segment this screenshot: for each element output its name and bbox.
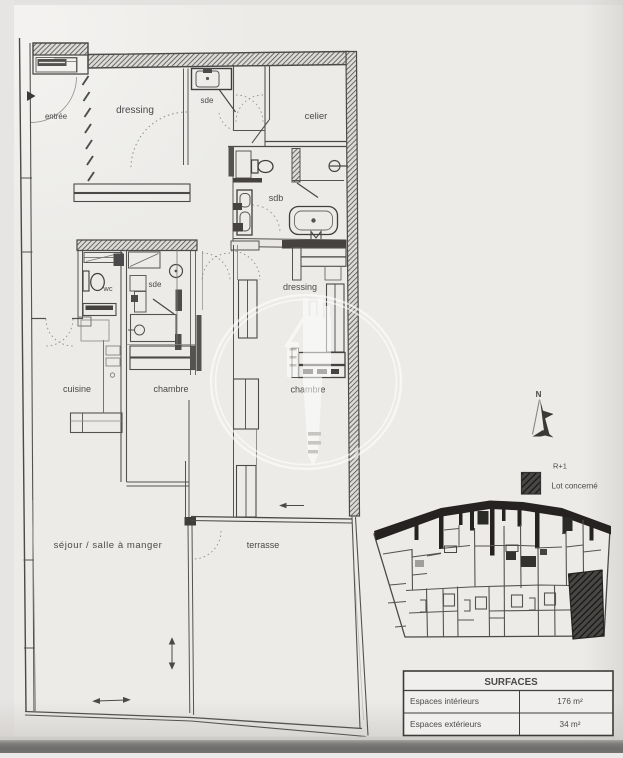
svg-text:SURFACES: SURFACES bbox=[484, 677, 538, 688]
svg-text:sde: sde bbox=[201, 96, 214, 105]
svg-text:34 m²: 34 m² bbox=[560, 720, 581, 729]
svg-text:dressing: dressing bbox=[283, 282, 317, 292]
svg-text:wc: wc bbox=[102, 284, 112, 293]
svg-text:Lot concerné: Lot concerné bbox=[552, 482, 599, 491]
svg-text:cuisine: cuisine bbox=[63, 384, 91, 394]
svg-text:dressing: dressing bbox=[116, 105, 154, 116]
svg-text:terrasse: terrasse bbox=[247, 540, 280, 550]
svg-text:176 m²: 176 m² bbox=[557, 697, 583, 706]
svg-text:entrée: entrée bbox=[45, 112, 67, 121]
svg-text:séjour / salle à manger: séjour / salle à manger bbox=[54, 540, 163, 551]
svg-text:sdb: sdb bbox=[269, 193, 284, 203]
svg-text:chambre: chambre bbox=[153, 384, 188, 394]
svg-text:celier: celier bbox=[305, 111, 328, 122]
svg-text:R+1: R+1 bbox=[553, 462, 567, 471]
svg-text:sde: sde bbox=[149, 280, 162, 289]
svg-text:Espaces intérieurs: Espaces intérieurs bbox=[410, 696, 479, 706]
svg-text:Espaces extérieurs: Espaces extérieurs bbox=[410, 719, 481, 729]
svg-text:N: N bbox=[536, 390, 542, 399]
